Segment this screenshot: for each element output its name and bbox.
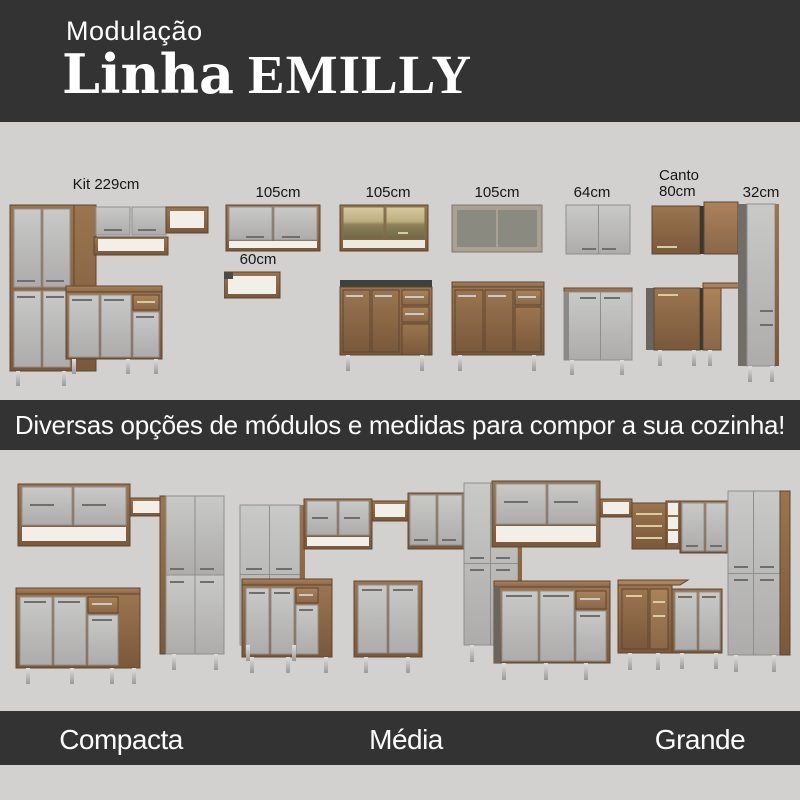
module-64cm-render (562, 202, 640, 380)
title-line-word: Linha (62, 42, 234, 106)
kitchen-grande-render (488, 473, 798, 708)
title-collection-name: EMILLY (248, 44, 472, 105)
kitchen-label-media: Média (369, 724, 443, 756)
kit-229cm-render (8, 198, 210, 390)
kitchen-compacta-render (10, 478, 240, 703)
kitchen-label-grande: Grande (655, 724, 745, 756)
modules-section: Kit 229cm 105cm 60cm 105cm 105cm 64cm Ca… (0, 122, 800, 400)
footer-strip (0, 765, 800, 800)
sizes-banner: Compacta Média Grande (0, 711, 800, 765)
product-sheet: Modulação LinhaEMILLY Kit 229cm 105cm 60… (0, 0, 800, 800)
kitchen-label-compacta: Compacta (59, 724, 183, 756)
middle-banner-text: Diversas opções de módulos e medidas par… (15, 410, 785, 441)
middle-banner: Diversas opções de módulos e medidas par… (0, 400, 800, 450)
module-label-canto80: Canto 80cm (659, 168, 711, 200)
wall-105cm-gray-render (224, 202, 324, 302)
module-label-105-b: 105cm (365, 184, 410, 201)
page-title: LinhaEMILLY (62, 42, 472, 106)
kitchen-media-render (238, 473, 522, 705)
wall-105cm-open-and-base-render (450, 202, 550, 380)
module-label-32: 32cm (743, 184, 780, 201)
wall-105cm-glass-and-base-render (338, 202, 438, 380)
kitchens-section (0, 450, 800, 711)
header-banner: Modulação LinhaEMILLY (0, 0, 800, 122)
module-label-64: 64cm (574, 184, 611, 201)
module-label-kit229: Kit 229cm (73, 176, 140, 193)
module-label-105-a: 105cm (255, 184, 300, 201)
module-label-105-c: 105cm (474, 184, 519, 201)
module-32cm-render (736, 202, 788, 388)
